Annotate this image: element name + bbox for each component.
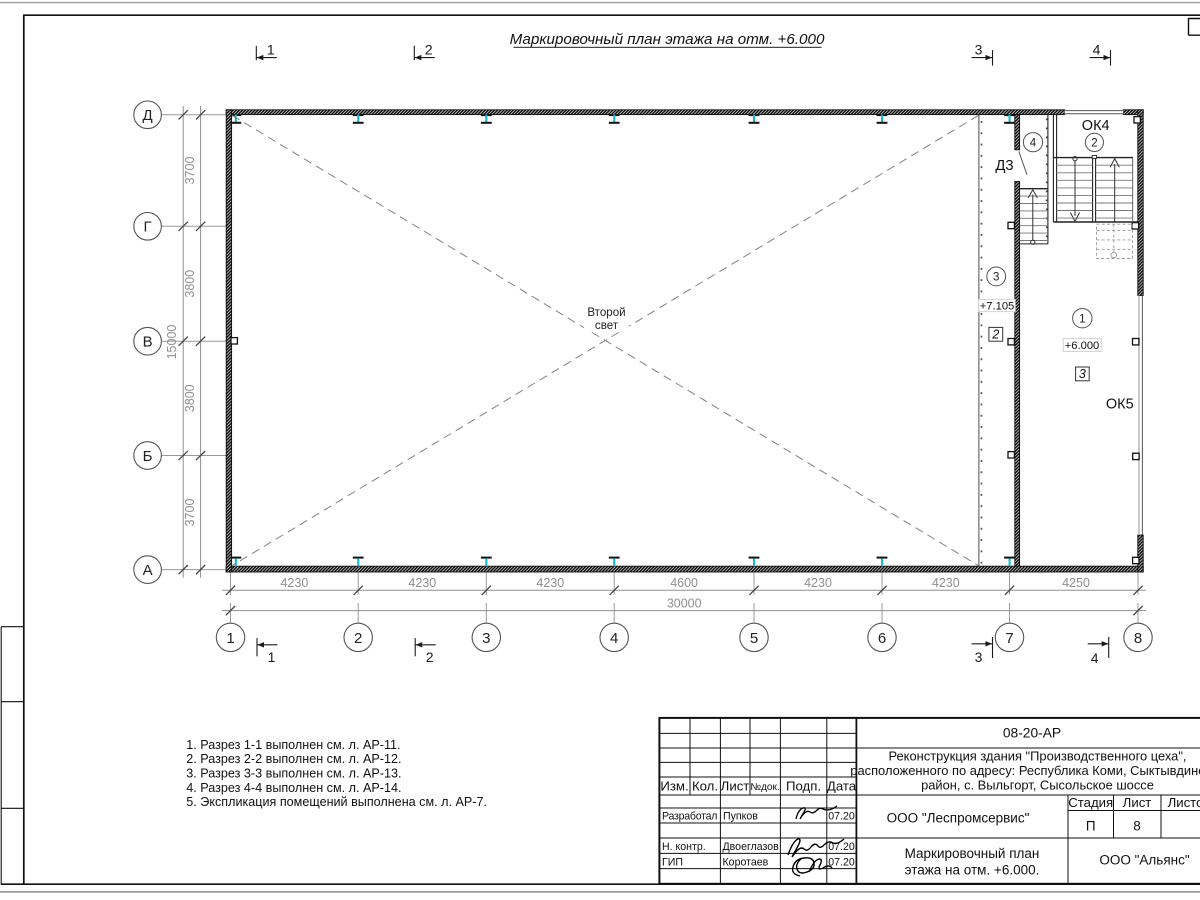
svg-text:4: 4 xyxy=(610,630,618,647)
svg-text:8: 8 xyxy=(1133,819,1141,834)
svg-text:30000: 30000 xyxy=(667,597,702,611)
svg-text:Листов: Листов xyxy=(1168,795,1200,810)
svg-text:4250: 4250 xyxy=(1062,576,1090,590)
svg-text:7: 7 xyxy=(1005,630,1013,647)
svg-text:2: 2 xyxy=(425,42,433,58)
svg-text:2: 2 xyxy=(1091,138,1097,150)
svg-text:07.20: 07.20 xyxy=(828,856,855,868)
svg-text:4230: 4230 xyxy=(932,576,960,590)
svg-text:ОК4: ОК4 xyxy=(1082,118,1110,134)
svg-text:4230: 4230 xyxy=(536,576,564,590)
svg-text:ГИП: ГИП xyxy=(662,856,683,868)
svg-text:1: 1 xyxy=(268,649,276,665)
svg-text:5. Экспликация помещений выпол: 5. Экспликация помещений выполнена см. л… xyxy=(186,795,487,809)
svg-text:6: 6 xyxy=(878,630,886,647)
svg-text:расположенного по адресу: Респ: расположенного по адресу: Республика Ком… xyxy=(850,763,1200,778)
svg-text:3700: 3700 xyxy=(183,157,197,185)
svg-text:Реконструкция здания "Производ: Реконструкция здания "Производственного … xyxy=(888,748,1186,763)
svg-text:Кол.: Кол. xyxy=(692,779,718,794)
svg-text:Лист: Лист xyxy=(1123,795,1152,810)
svg-text:Маркировочный план: Маркировочный план xyxy=(905,846,1040,861)
svg-text:Дата: Дата xyxy=(827,779,857,794)
svg-text:07.20: 07.20 xyxy=(828,810,855,822)
svg-text:ОК5: ОК5 xyxy=(1106,397,1134,413)
svg-text:Коротаев: Коротаев xyxy=(723,856,769,868)
svg-text:А: А xyxy=(143,562,153,579)
svg-text:Пупков: Пупков xyxy=(723,810,758,822)
svg-text:1: 1 xyxy=(267,42,275,58)
svg-text:ООО "Альянс": ООО "Альянс" xyxy=(1099,853,1189,868)
svg-text:Маркировочный план этажа на от: Маркировочный план этажа на отм. +6.000 xyxy=(510,31,825,48)
svg-text:2: 2 xyxy=(991,327,999,341)
svg-text:2: 2 xyxy=(426,649,434,665)
svg-text:2. Разрез 2-2 выполнен см. л.: 2. Разрез 2-2 выполнен см. л. АР-12. xyxy=(186,752,401,766)
svg-text:8: 8 xyxy=(1134,630,1142,647)
svg-text:3800: 3800 xyxy=(183,384,197,412)
svg-text:Подп.: Подп. xyxy=(786,779,821,794)
svg-text:район, с. Выльгорт, Сысольское: район, с. Выльгорт, Сысольское шоссе xyxy=(921,777,1154,792)
svg-text:08-20-АР: 08-20-АР xyxy=(1003,726,1061,741)
svg-text:В: В xyxy=(143,334,153,351)
svg-text:Д: Д xyxy=(143,107,153,124)
svg-text:4230: 4230 xyxy=(280,576,308,590)
svg-text:3: 3 xyxy=(975,42,983,58)
svg-text:4600: 4600 xyxy=(670,576,698,590)
svg-text:3: 3 xyxy=(1079,367,1086,381)
svg-text:4230: 4230 xyxy=(408,576,436,590)
svg-text:3800: 3800 xyxy=(183,270,197,298)
svg-text:Стадия: Стадия xyxy=(1068,795,1113,810)
svg-text:1: 1 xyxy=(1079,313,1085,325)
svg-text:Н. контр.: Н. контр. xyxy=(662,841,706,853)
svg-text:3700: 3700 xyxy=(183,499,197,527)
svg-text:Д3: Д3 xyxy=(995,158,1013,174)
svg-text:+7.105: +7.105 xyxy=(980,300,1015,312)
svg-text:4230: 4230 xyxy=(804,576,832,590)
svg-text:П: П xyxy=(1086,819,1096,834)
svg-text:4: 4 xyxy=(1091,650,1099,666)
svg-text:свет: свет xyxy=(595,319,619,332)
svg-text:1. Разрез 1-1 выполнен см. л.: 1. Разрез 1-1 выполнен см. л. АР-11. xyxy=(186,738,400,752)
svg-text:Лист: Лист xyxy=(721,779,750,794)
svg-text:Второй: Второй xyxy=(587,306,625,319)
svg-text:4: 4 xyxy=(1030,137,1037,149)
svg-text:2: 2 xyxy=(354,630,362,647)
svg-text:3. Разрез 3-3 выполнен см. л.: 3. Разрез 3-3 выполнен см. л. АР-13. xyxy=(186,767,401,781)
svg-text:3: 3 xyxy=(993,272,999,284)
svg-text:15000: 15000 xyxy=(165,325,179,360)
svg-text:ООО "Леспромсервис": ООО "Леспромсервис" xyxy=(887,810,1030,825)
svg-text:4: 4 xyxy=(1093,42,1101,58)
svg-text:5: 5 xyxy=(750,630,758,647)
svg-text:4. Разрез 4-4 выполнен см. л.: 4. Разрез 4-4 выполнен см. л. АР-14. xyxy=(186,781,401,795)
svg-text:3: 3 xyxy=(975,649,983,665)
svg-text:1: 1 xyxy=(226,630,234,647)
svg-text:3: 3 xyxy=(482,630,490,647)
svg-text:этажа на отм. +6.000.: этажа на отм. +6.000. xyxy=(905,863,1040,878)
svg-text:№док.: №док. xyxy=(750,782,779,793)
svg-text:Изм.: Изм. xyxy=(660,779,688,794)
svg-text:Г: Г xyxy=(144,219,152,236)
svg-text:Б: Б xyxy=(143,448,153,465)
svg-text:Разработал: Разработал xyxy=(662,810,717,822)
svg-text:+6.000: +6.000 xyxy=(1065,340,1100,352)
svg-text:Двоеглазов: Двоеглазов xyxy=(723,841,780,853)
